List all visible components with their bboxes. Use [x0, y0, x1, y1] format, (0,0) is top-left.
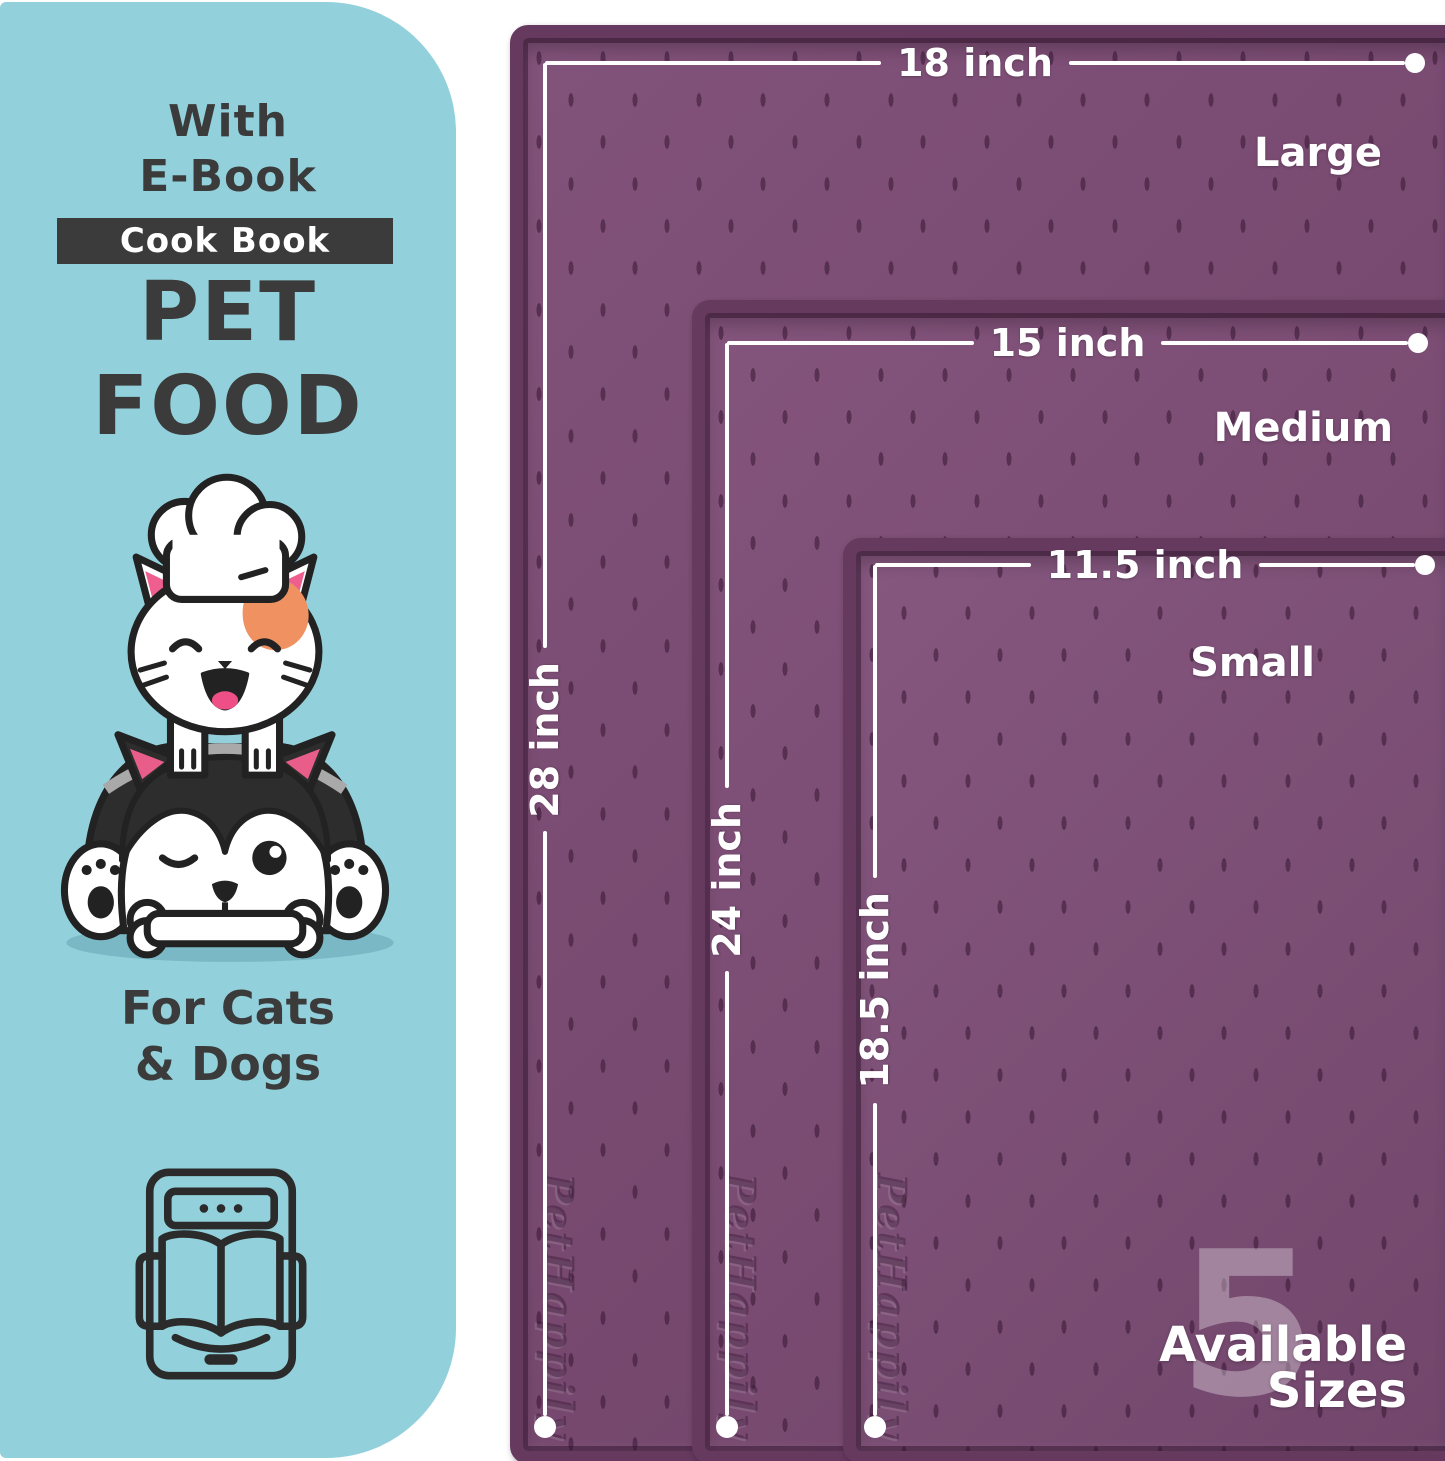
dim-line [1069, 61, 1405, 65]
dim-width-small: 11.5 inch [875, 543, 1435, 587]
dim-width-small-label: 11.5 inch [1047, 543, 1244, 587]
dim-height-medium: 24 inch [704, 343, 750, 1438]
available-sizes-note: Available Sizes [1159, 1322, 1407, 1414]
ebook-note: With E-Book [0, 94, 456, 204]
dim-line [725, 971, 729, 1416]
dim-height-small-label: 18.5 inch [853, 892, 897, 1089]
dim-line [725, 343, 729, 788]
dim-endpoint-dot [864, 1416, 886, 1438]
dim-line [1161, 341, 1408, 345]
dim-endpoint-dot [1415, 555, 1435, 575]
dim-height-large: 28 inch [522, 63, 568, 1438]
ebook-note-line1: With [0, 94, 456, 149]
dim-width-medium: 15 inch [727, 321, 1428, 365]
dim-line [875, 563, 1031, 567]
product-title-line2: FOOD [0, 360, 456, 454]
dim-endpoint-dot [716, 1416, 738, 1438]
left-panel: With E-Book Cook Book PET FOOD [0, 2, 456, 1458]
size-label-small: Small [1190, 640, 1315, 686]
dim-endpoint-dot [1408, 333, 1428, 353]
for-cats-dogs-label: For Cats & Dogs [0, 980, 456, 1092]
audience-line2: & Dogs [0, 1036, 456, 1092]
dim-height-small: 18.5 inch [852, 565, 898, 1438]
available-sizes-line1: Available [1159, 1322, 1407, 1368]
dim-line [545, 61, 881, 65]
dim-line [543, 63, 547, 648]
audience-line1: For Cats [0, 980, 456, 1036]
dim-width-medium-label: 15 inch [990, 321, 1146, 365]
dim-height-medium-label: 24 inch [705, 802, 749, 958]
product-title-line1: PET [0, 266, 456, 360]
chef-cat-dog-illustration [35, 454, 415, 969]
product-title: PET FOOD [0, 266, 456, 454]
dim-height-large-label: 28 inch [523, 662, 567, 818]
size-label-large: Large [1254, 130, 1382, 176]
dim-endpoint-dot [1405, 53, 1425, 73]
dim-line [1259, 563, 1415, 567]
available-sizes-line2: Sizes [1159, 1368, 1407, 1414]
dim-width-large-label: 18 inch [897, 41, 1053, 85]
ebook-note-line2: E-Book [0, 149, 456, 204]
dim-line [873, 565, 877, 878]
dim-endpoint-dot [534, 1416, 556, 1438]
dim-line [727, 341, 974, 345]
cookbook-badge: Cook Book [57, 218, 393, 264]
ebook-icon [126, 1164, 316, 1384]
dim-width-large: 18 inch [545, 41, 1425, 85]
size-label-medium: Medium [1214, 405, 1393, 451]
product-infographic: With E-Book Cook Book PET FOOD [0, 0, 1445, 1461]
dim-line [873, 1103, 877, 1416]
dim-line [543, 831, 547, 1416]
